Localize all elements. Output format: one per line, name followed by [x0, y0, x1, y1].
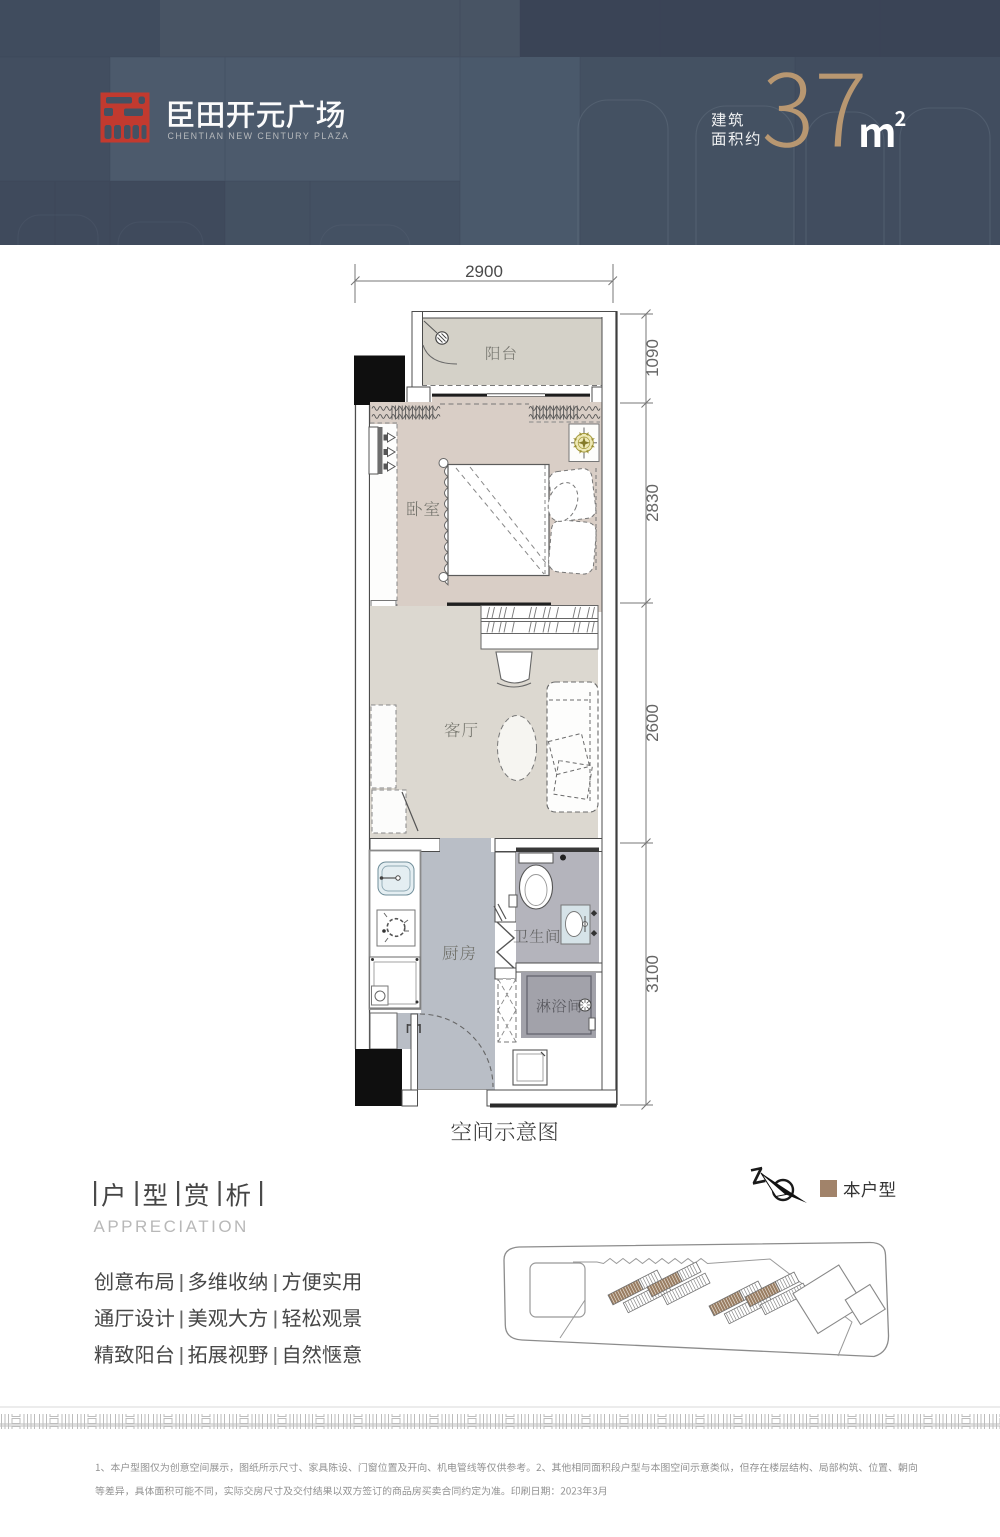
svg-text:CHENTIAN NEW CENTURY PLAZA: CHENTIAN NEW CENTURY PLAZA — [168, 131, 350, 141]
svg-text:APPRECIATION: APPRECIATION — [94, 1217, 249, 1236]
svg-text:2830: 2830 — [643, 484, 662, 522]
svg-text:3100: 3100 — [643, 955, 662, 993]
svg-text:1090: 1090 — [643, 339, 662, 377]
svg-text:2600: 2600 — [643, 704, 662, 742]
svg-text:2900: 2900 — [465, 262, 503, 281]
